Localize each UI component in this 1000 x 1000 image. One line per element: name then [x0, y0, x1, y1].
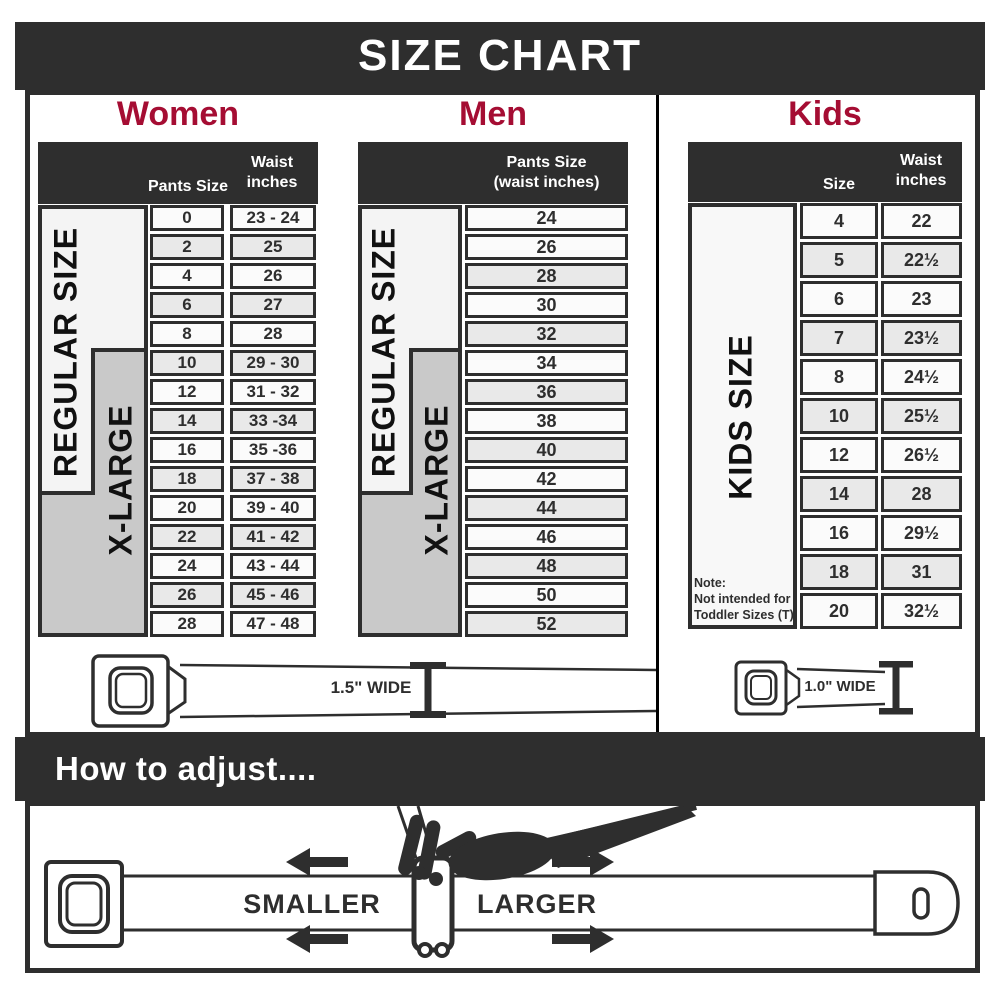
table-row: 2645 - 46: [150, 582, 316, 608]
table-row: 2032½: [800, 593, 962, 629]
kids-band-label: KIDS SIZE: [723, 334, 760, 499]
men-regular-band-label: REGULAR SIZE: [366, 227, 403, 477]
table-row: 422: [800, 203, 962, 239]
table-row: 46: [465, 524, 628, 550]
table-row: 1629½: [800, 515, 962, 551]
table-row: 24: [465, 205, 628, 231]
table-row: 627: [150, 292, 316, 318]
size-chart-page: SIZE CHART Women Men Kids Pants Size Wai…: [0, 0, 1000, 1000]
larger-label: LARGER: [457, 889, 617, 920]
table-row: 1025½: [800, 398, 962, 434]
table-row: 828: [150, 321, 316, 347]
table-row: 1433 -34: [150, 408, 316, 434]
adult-belt-width-label: 1.5" WIDE: [296, 678, 446, 698]
belt-strap: [797, 704, 885, 707]
women-table-rows: 023 - 24 225 426 627 828 1029 - 30 1231 …: [150, 205, 316, 640]
table-row: 1837 - 38: [150, 466, 316, 492]
kids-belt-width-label: 1.0" WIDE: [775, 678, 905, 695]
table-row: 34: [465, 350, 628, 376]
men-table-rows: 24 26 28 30 32 34 36 38 40 42 44 46 48 5…: [465, 205, 628, 640]
belt-buckle-icon: [46, 862, 122, 946]
women-xlarge-band-label: X-LARGE: [103, 405, 140, 556]
belt-strap: [797, 669, 885, 672]
men-heading: Men: [383, 95, 603, 134]
table-row: 623: [800, 281, 962, 317]
table-row: 36: [465, 379, 628, 405]
table-row: 723½: [800, 320, 962, 356]
table-row: 44: [465, 495, 628, 521]
table-row: 32: [465, 321, 628, 347]
women-col-waist-header: Waist inches: [226, 153, 318, 192]
table-row: 522½: [800, 242, 962, 278]
page-title: SIZE CHART: [15, 22, 985, 90]
table-row: 2039 - 40: [150, 495, 316, 521]
men-col-header: Pants Size (waist inches): [463, 153, 630, 192]
table-row: 1231 - 32: [150, 379, 316, 405]
men-xlarge-band-label: X-LARGE: [419, 405, 456, 556]
table-row: 40: [465, 437, 628, 463]
arrow-left-icon: [286, 848, 348, 876]
table-row: 1831: [800, 554, 962, 590]
table-row: 023 - 24: [150, 205, 316, 231]
kids-col-waist-header: Waist inches: [877, 151, 965, 190]
adjust-illustration: [30, 806, 970, 968]
panel-divider: [656, 95, 659, 732]
table-row: 1428: [800, 476, 962, 512]
table-row: 225: [150, 234, 316, 260]
table-row: 2241 - 42: [150, 524, 316, 550]
women-heading: Women: [68, 95, 288, 134]
table-row: 42: [465, 466, 628, 492]
table-row: 1226½: [800, 437, 962, 473]
table-row: 2847 - 48: [150, 611, 316, 637]
belt-tip-icon: [875, 872, 958, 934]
smaller-label: SMALLER: [232, 889, 392, 920]
table-row: 1029 - 30: [150, 350, 316, 376]
table-row: 50: [465, 582, 628, 608]
table-row: 28: [465, 263, 628, 289]
table-row: 30: [465, 292, 628, 318]
table-row: 26: [465, 234, 628, 260]
table-row: 38: [465, 408, 628, 434]
table-row: 824½: [800, 359, 962, 395]
kids-heading: Kids: [715, 95, 935, 134]
kids-col-size-header: Size: [796, 175, 882, 195]
women-col-size-header: Pants Size: [140, 177, 236, 197]
kids-note: Note: Not intended for Toddler Sizes (T): [694, 575, 794, 623]
table-row: 2443 - 44: [150, 553, 316, 579]
women-regular-band-label: REGULAR SIZE: [48, 227, 85, 477]
kids-table-rows: 422 522½ 623 723½ 824½ 1025½ 1226½ 1428 …: [800, 203, 962, 632]
table-row: 48: [465, 553, 628, 579]
table-row: 1635 -36: [150, 437, 316, 463]
table-row: 426: [150, 263, 316, 289]
how-to-adjust-heading: How to adjust....: [15, 737, 985, 801]
table-row: 52: [465, 611, 628, 637]
